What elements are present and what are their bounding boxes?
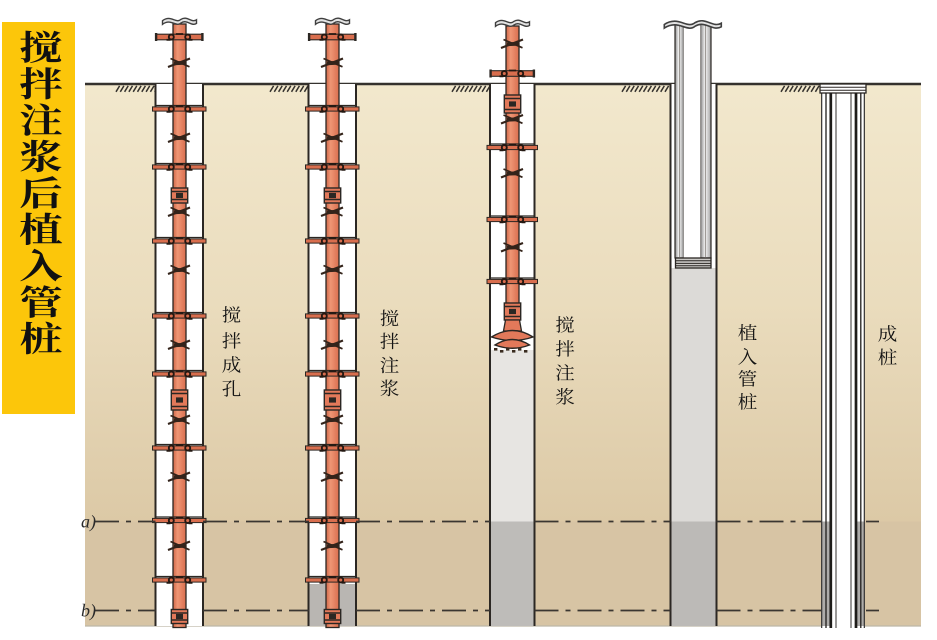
svg-text:a): a)	[81, 512, 96, 533]
svg-text:b): b)	[81, 601, 96, 622]
